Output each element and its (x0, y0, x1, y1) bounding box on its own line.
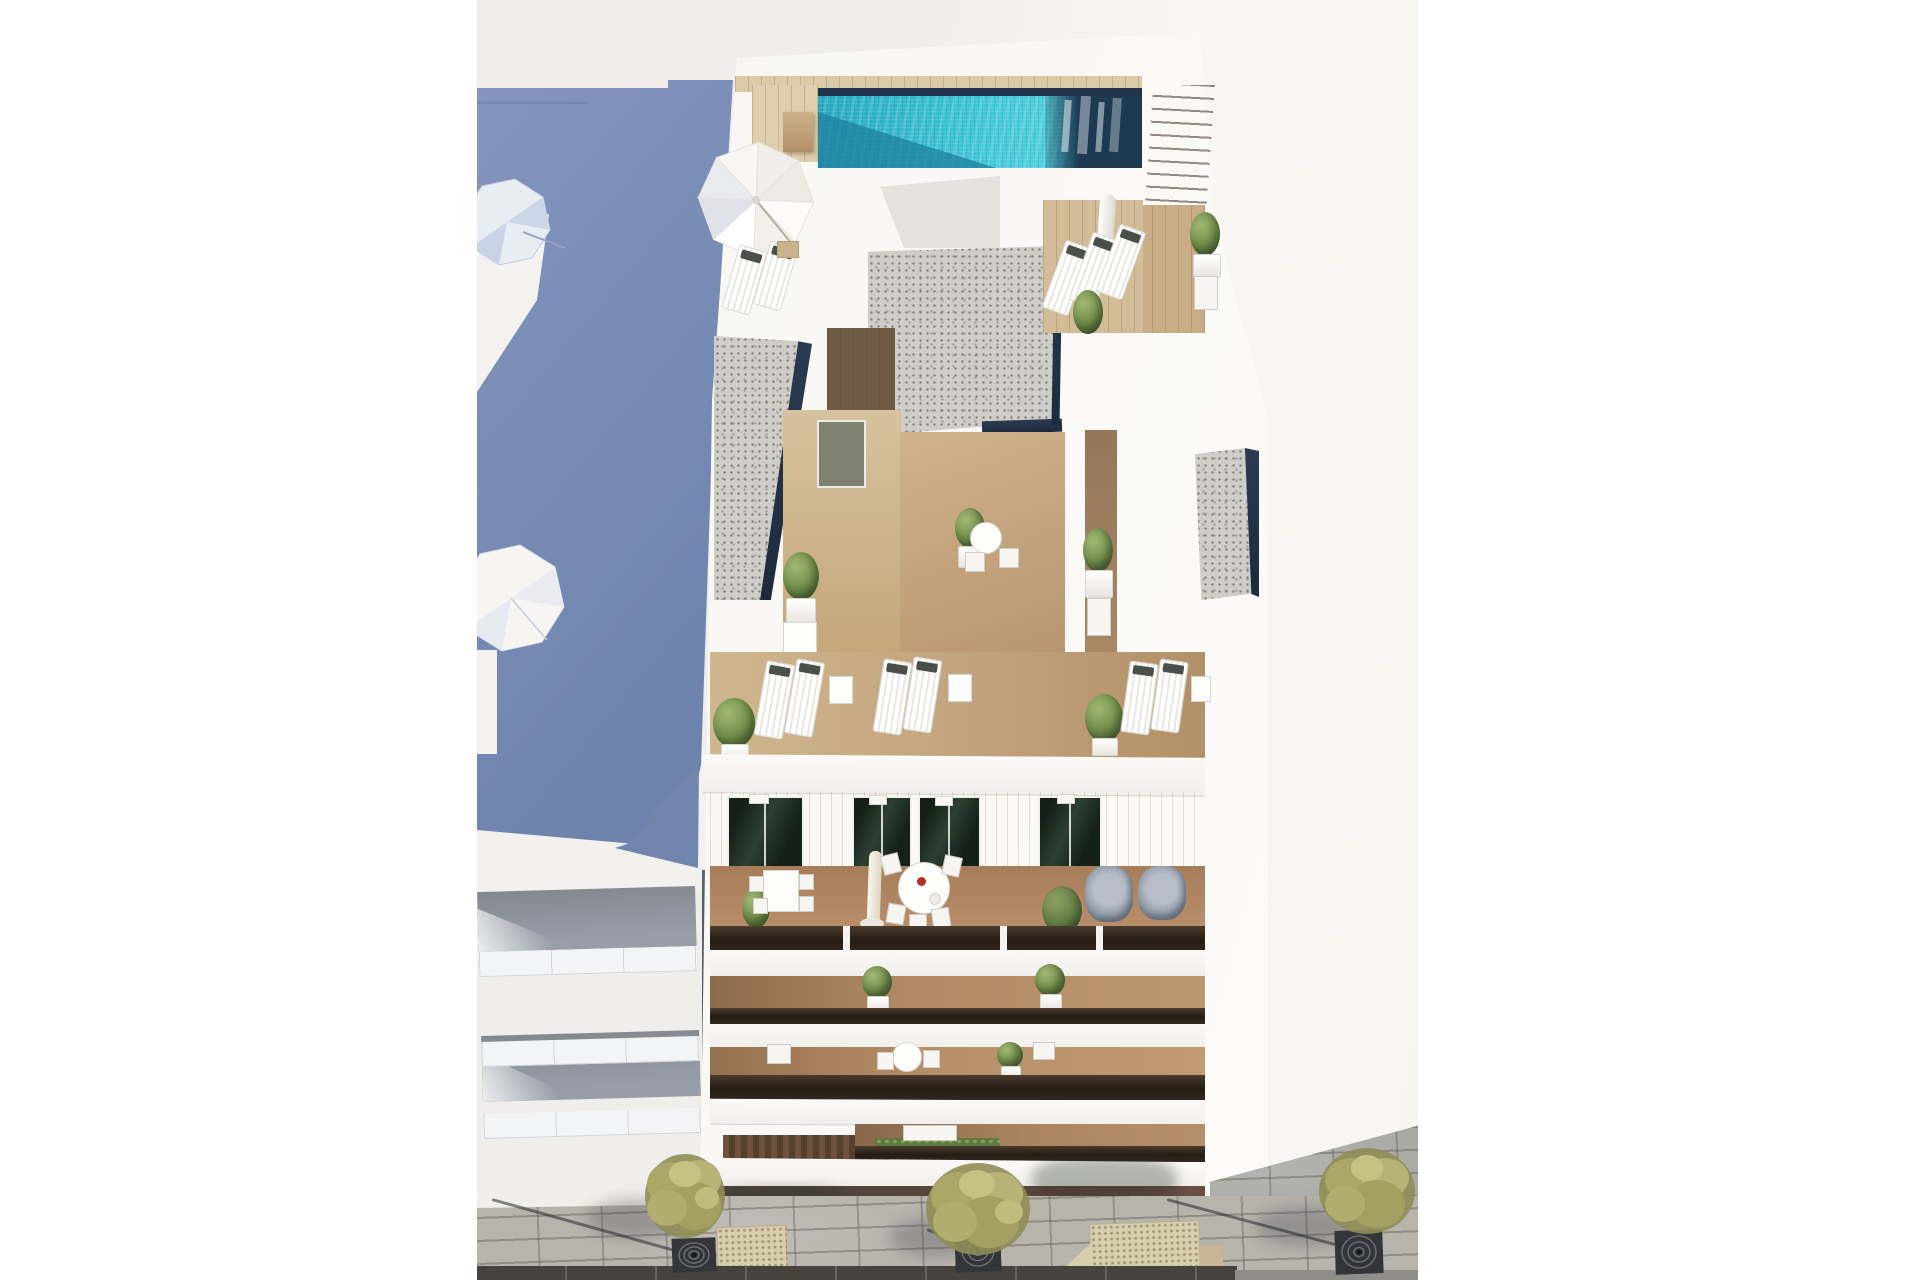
glass-door-4 (1038, 796, 1102, 870)
armchair-1 (1085, 866, 1133, 922)
railing-post-1c (1096, 926, 1103, 952)
neighbor-slab-1 (479, 946, 698, 977)
vent-2 (869, 795, 887, 805)
vent-1 (749, 794, 769, 804)
dining-chair-a2 (799, 874, 814, 890)
pool-edge-navy (818, 88, 1142, 96)
round-table-chair-3 (885, 903, 906, 926)
dining-chair-a3 (753, 898, 768, 914)
page-background (0, 0, 1920, 1280)
stair-planter-bush (1190, 212, 1220, 256)
stairwell-door (817, 420, 866, 488)
pool-dark-end (1045, 88, 1142, 168)
terrace-side-table-2 (948, 674, 972, 702)
pool-reflection-4 (1109, 98, 1122, 152)
table-red-centerpiece (917, 877, 926, 886)
street-tree-2 (919, 1154, 1037, 1264)
stair-chair (1194, 276, 1218, 310)
closed-parasol-balcony (867, 851, 883, 923)
armchair-2 (1138, 866, 1186, 920)
rightwing-planter (1085, 570, 1113, 598)
roof-slab (703, 754, 1205, 797)
roof-side-table (777, 241, 799, 258)
terrace-bush-left (783, 552, 819, 600)
terrace-planter-left (786, 598, 816, 624)
pool-reflection-2 (1077, 96, 1091, 155)
rightwing-steps (1087, 598, 1111, 636)
shadow-notch (477, 650, 497, 754)
roof-corridor-shaded (827, 328, 895, 412)
architectural-render-photo (477, 0, 1418, 1280)
glass-railing-2 (710, 1008, 1205, 1024)
rooftop-pool (818, 88, 1142, 168)
central-bistro-chair-2 (999, 548, 1019, 568)
street-tree-1 (637, 1144, 733, 1250)
balcony4-chairs (903, 1125, 957, 1141)
terrace-table-left (783, 622, 817, 654)
dining-chair-a1 (749, 876, 764, 892)
balcony3-chair-2 (877, 1052, 894, 1070)
glass-railing-1 (710, 926, 1205, 952)
vent-3 (935, 796, 953, 806)
railing-post-1a (843, 926, 850, 952)
right-roof-bush (1073, 290, 1103, 334)
stairwell-roof-gravel (868, 246, 1060, 434)
central-bistro-chair-1 (965, 552, 985, 572)
slab-1 (710, 950, 1205, 977)
street-tree-3 (1313, 1140, 1418, 1242)
table-plate (929, 893, 941, 905)
road-edge-right (1235, 1270, 1418, 1280)
glass-door-1 (727, 796, 804, 870)
neighbor-slab-3 (483, 1108, 702, 1139)
balcony3-chair-1 (767, 1044, 791, 1064)
railing-post-1b (1000, 926, 1007, 952)
balcony2-plant-1 (862, 966, 892, 998)
stair-planter (1193, 254, 1221, 278)
balcony-deck-2 (710, 976, 1205, 1010)
balcony3-chair-4 (1033, 1042, 1055, 1060)
balcony3-plant (997, 1042, 1023, 1068)
balcony3-chair-3 (923, 1050, 940, 1068)
terrace-row-tree-2 (1085, 694, 1123, 742)
balcony2-plant-2 (1035, 964, 1065, 996)
pool-reflection-1 (1061, 100, 1072, 152)
rightwing-bush (1083, 528, 1113, 572)
vent-4 (1057, 794, 1075, 804)
pool-reflection-3 (1095, 102, 1104, 152)
dining-table-square (763, 870, 799, 912)
terrace-side-table-3 (1191, 676, 1211, 702)
glass-railing-3 (710, 1075, 1205, 1100)
neighbor-balcony-shadow-1 (477, 886, 697, 952)
central-bistro-table (970, 522, 1002, 554)
roof-stairs (1145, 85, 1215, 205)
slab-3 (710, 1099, 1205, 1128)
dining-chair-a4 (799, 896, 814, 912)
balcony3-table (892, 1042, 922, 1072)
terrace-row-tree-1 (713, 698, 755, 748)
terrace-side-table-1 (829, 676, 853, 704)
road-edge (477, 1266, 1237, 1280)
terrace-row-pot-2 (1092, 738, 1118, 756)
